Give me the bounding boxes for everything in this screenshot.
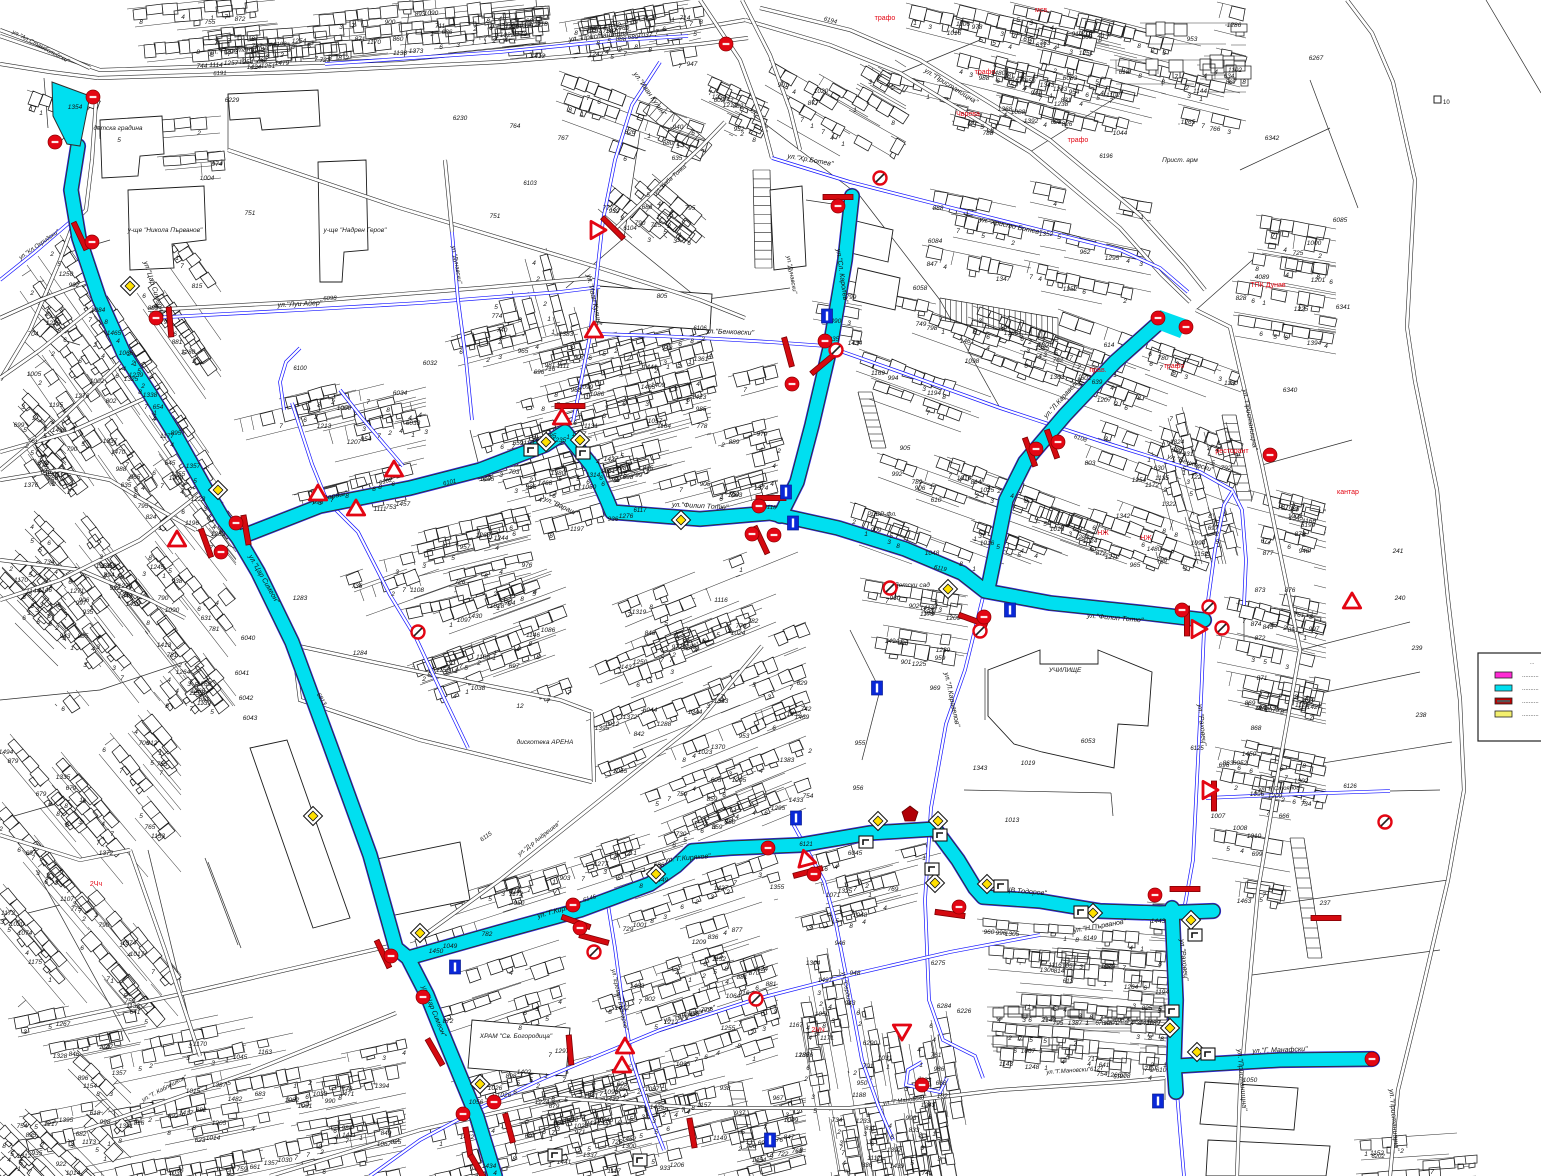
svg-text:1213: 1213	[317, 423, 332, 430]
svg-text:900: 900	[385, 19, 396, 26]
svg-text:3: 3	[990, 498, 994, 505]
svg-text:1465: 1465	[107, 330, 122, 337]
svg-text:939: 939	[609, 208, 620, 215]
svg-text:7: 7	[1169, 416, 1173, 423]
svg-text:697: 697	[1208, 525, 1219, 532]
svg-text:прав.: прав.	[1089, 367, 1106, 374]
svg-text:8: 8	[338, 1095, 342, 1102]
svg-text:3: 3	[1069, 49, 1073, 56]
svg-text:6: 6	[573, 420, 577, 427]
svg-text:1: 1	[642, 867, 646, 874]
svg-text:836: 836	[708, 934, 719, 941]
svg-text:7: 7	[627, 612, 631, 619]
svg-text:5: 5	[1029, 1037, 1033, 1044]
svg-text:685: 685	[1104, 964, 1115, 971]
svg-text:1: 1	[158, 525, 162, 532]
svg-text:1343: 1343	[973, 765, 988, 772]
svg-text:5: 5	[529, 1077, 533, 1084]
svg-text:дискотека АРЕНА: дискотека АРЕНА	[517, 738, 574, 746]
svg-text:610: 610	[931, 497, 942, 504]
svg-text:849: 849	[381, 1130, 392, 1137]
svg-text:2: 2	[1280, 797, 1285, 804]
svg-text:699: 699	[14, 422, 25, 429]
svg-text:6: 6	[500, 444, 504, 451]
svg-text:3: 3	[109, 1091, 113, 1098]
svg-text:1394: 1394	[1307, 340, 1322, 347]
svg-text:4: 4	[959, 69, 963, 76]
svg-text:7: 7	[405, 33, 409, 40]
svg-text:1094: 1094	[1191, 540, 1206, 547]
svg-text:3: 3	[904, 1086, 908, 1093]
svg-text:761: 761	[931, 1052, 942, 1059]
svg-text:3: 3	[362, 426, 366, 433]
svg-text:6044: 6044	[643, 707, 658, 714]
svg-text:6: 6	[1092, 525, 1096, 532]
svg-text:936: 936	[608, 516, 619, 523]
svg-text:1164: 1164	[657, 423, 671, 430]
svg-text:1205: 1205	[212, 1120, 227, 1127]
svg-text:1: 1	[605, 1122, 609, 1129]
svg-text:4: 4	[134, 729, 138, 736]
svg-text:6: 6	[724, 819, 728, 826]
svg-text:828: 828	[1236, 295, 1247, 302]
svg-text:2: 2	[535, 276, 540, 283]
svg-text:1357: 1357	[186, 463, 201, 470]
svg-text:5: 5	[1043, 1038, 1047, 1045]
svg-text:965: 965	[518, 348, 529, 355]
svg-text:3: 3	[1079, 964, 1083, 971]
svg-text:651: 651	[199, 696, 210, 703]
svg-text:1037: 1037	[638, 32, 653, 39]
svg-text:790: 790	[99, 922, 110, 929]
svg-text:7: 7	[1266, 810, 1270, 817]
svg-text:768: 768	[48, 475, 59, 482]
svg-text:3: 3	[518, 317, 522, 324]
svg-text:1017: 1017	[130, 951, 145, 958]
svg-text:630: 630	[1154, 465, 1165, 472]
svg-text:..........: ..........	[1522, 686, 1539, 692]
svg-text:8: 8	[1137, 43, 1141, 50]
svg-text:1225: 1225	[912, 661, 927, 668]
svg-text:1: 1	[39, 110, 43, 117]
svg-text:2: 2	[177, 662, 182, 669]
svg-text:5: 5	[227, 1080, 231, 1087]
svg-text:1: 1	[1262, 300, 1266, 307]
svg-text:725: 725	[651, 222, 662, 229]
svg-text:799: 799	[632, 472, 643, 479]
svg-text:1497: 1497	[818, 977, 833, 984]
svg-text:3: 3	[203, 506, 207, 513]
svg-text:2: 2	[344, 55, 349, 62]
svg-text:2: 2	[1206, 445, 1211, 452]
svg-text:1238: 1238	[1054, 101, 1069, 108]
svg-text:6226: 6226	[957, 1008, 972, 1015]
svg-text:3: 3	[1136, 1034, 1140, 1041]
svg-text:4: 4	[495, 545, 499, 552]
svg-text:4: 4	[997, 1017, 1001, 1024]
svg-text:7: 7	[548, 1052, 552, 1059]
svg-text:6: 6	[523, 1010, 527, 1017]
svg-text:1304: 1304	[806, 960, 821, 967]
svg-text:1074: 1074	[122, 940, 137, 947]
svg-text:3: 3	[424, 429, 428, 436]
svg-text:8: 8	[317, 402, 321, 409]
svg-text:5: 5	[1189, 491, 1193, 498]
svg-text:3: 3	[83, 662, 87, 669]
svg-text:6: 6	[890, 1134, 894, 1141]
svg-text:954: 954	[361, 436, 372, 443]
svg-text:8: 8	[219, 528, 223, 535]
svg-text:2: 2	[92, 342, 97, 349]
svg-text:3: 3	[762, 1026, 766, 1033]
svg-text:7: 7	[120, 675, 124, 682]
svg-text:1: 1	[34, 439, 38, 446]
svg-text:1: 1	[359, 1135, 363, 1142]
svg-text:1026: 1026	[488, 1085, 503, 1092]
svg-text:1070: 1070	[606, 28, 621, 35]
svg-text:3: 3	[1029, 20, 1033, 27]
svg-text:1288: 1288	[657, 721, 672, 728]
svg-text:1: 1	[552, 879, 556, 886]
svg-text:946: 946	[835, 940, 846, 947]
svg-text:1333: 1333	[714, 698, 729, 705]
svg-text:1441: 1441	[643, 364, 658, 371]
svg-text:1430: 1430	[1139, 1020, 1154, 1027]
svg-text:5: 5	[620, 453, 624, 460]
svg-text:6042: 6042	[239, 695, 254, 702]
svg-text:2: 2	[45, 873, 50, 880]
svg-text:2: 2	[818, 1001, 823, 1008]
svg-text:847: 847	[927, 261, 938, 268]
svg-text:4: 4	[792, 89, 796, 96]
svg-text:1482: 1482	[228, 1096, 243, 1103]
svg-text:трафо: трафо	[975, 69, 996, 76]
svg-text:1197: 1197	[570, 526, 584, 533]
svg-text:706: 706	[139, 740, 150, 747]
svg-text:766: 766	[1210, 126, 1221, 133]
svg-text:2: 2	[528, 477, 533, 484]
svg-text:1430: 1430	[468, 613, 483, 620]
svg-text:3: 3	[318, 1144, 322, 1151]
svg-text:6032: 6032	[423, 360, 438, 367]
svg-text:6: 6	[1292, 799, 1296, 806]
svg-text:7: 7	[227, 51, 231, 58]
svg-text:4: 4	[675, 970, 679, 977]
svg-text:4: 4	[1079, 101, 1083, 108]
svg-text:1: 1	[551, 329, 555, 336]
svg-text:7: 7	[681, 1107, 685, 1114]
svg-text:5: 5	[558, 476, 562, 483]
svg-text:799: 799	[846, 294, 857, 301]
svg-text:8: 8	[959, 561, 963, 568]
svg-text:1302: 1302	[1294, 778, 1309, 785]
svg-text:5: 5	[81, 441, 85, 448]
svg-text:7: 7	[189, 679, 193, 686]
svg-text:1196: 1196	[185, 520, 199, 527]
svg-text:6290: 6290	[863, 1040, 878, 1047]
svg-text:у-ще "Никола Първанов": у-ще "Никола Първанов"	[127, 227, 203, 234]
svg-text:1016: 1016	[980, 540, 995, 547]
svg-text:1361: 1361	[694, 356, 709, 363]
svg-text:6: 6	[1067, 72, 1071, 79]
svg-text:1: 1	[496, 605, 500, 612]
svg-text:5: 5	[48, 1024, 52, 1031]
svg-text:888: 888	[616, 36, 627, 43]
svg-text:6: 6	[824, 866, 828, 873]
svg-text:903: 903	[560, 875, 571, 882]
svg-text:4: 4	[212, 524, 216, 531]
svg-text:815: 815	[192, 283, 203, 290]
svg-text:1239: 1239	[129, 372, 144, 379]
svg-text:2: 2	[330, 399, 335, 406]
svg-text:3: 3	[918, 1132, 922, 1139]
svg-text:241: 241	[1392, 548, 1404, 555]
svg-text:7: 7	[279, 423, 283, 430]
svg-text:802: 802	[106, 398, 117, 405]
svg-text:6: 6	[181, 509, 185, 516]
svg-text:6041: 6041	[235, 670, 250, 677]
svg-text:6: 6	[1251, 298, 1255, 305]
svg-text:1254: 1254	[292, 38, 307, 45]
svg-text:7: 7	[879, 83, 883, 90]
svg-text:8: 8	[1162, 528, 1166, 535]
svg-text:5: 5	[1182, 466, 1186, 473]
svg-text:948: 948	[850, 970, 861, 977]
svg-text:1225: 1225	[1294, 306, 1309, 313]
svg-text:5: 5	[45, 464, 49, 471]
svg-text:ТПК Дунав: ТПК Дунав	[1250, 282, 1285, 289]
svg-text:4: 4	[251, 1126, 255, 1133]
svg-text:12: 12	[516, 703, 524, 710]
svg-text:2: 2	[726, 628, 731, 635]
svg-text:836: 836	[862, 1162, 873, 1169]
svg-text:7: 7	[926, 410, 930, 417]
svg-text:1: 1	[913, 20, 917, 27]
svg-text:6: 6	[623, 156, 627, 163]
svg-text:1118: 1118	[534, 21, 548, 28]
svg-text:1005: 1005	[27, 371, 42, 378]
svg-text:8: 8	[484, 573, 488, 580]
svg-text:1: 1	[671, 17, 675, 24]
svg-text:1261: 1261	[601, 468, 616, 475]
svg-text:6: 6	[133, 493, 137, 500]
svg-text:1: 1	[70, 645, 74, 652]
svg-text:8: 8	[1161, 79, 1165, 86]
svg-text:5: 5	[1273, 334, 1277, 341]
svg-text:994: 994	[888, 375, 899, 382]
svg-text:1044: 1044	[1113, 130, 1128, 137]
svg-text:6: 6	[333, 1128, 337, 1135]
svg-text:696: 696	[898, 640, 909, 647]
svg-text:741: 741	[922, 1170, 933, 1176]
svg-text:6: 6	[78, 358, 82, 365]
svg-text:1265: 1265	[1181, 119, 1196, 126]
svg-text:4: 4	[1285, 272, 1289, 279]
svg-text:УЧИЛИЩЕ: УЧИЛИЩЕ	[1048, 667, 1082, 674]
svg-text:8: 8	[574, 30, 578, 37]
svg-text:984: 984	[342, 1125, 353, 1132]
svg-text:879: 879	[8, 758, 19, 765]
svg-text:1166: 1166	[1302, 518, 1316, 525]
svg-text:7: 7	[294, 1155, 298, 1162]
svg-text:7: 7	[88, 317, 92, 324]
svg-text:1099: 1099	[579, 384, 594, 391]
svg-text:8: 8	[378, 484, 382, 491]
svg-text:749: 749	[916, 321, 927, 328]
svg-text:2: 2	[50, 351, 55, 358]
svg-text:1: 1	[1085, 1020, 1089, 1027]
svg-text:1: 1	[27, 610, 31, 617]
svg-text:1457: 1457	[396, 501, 411, 508]
svg-text:960: 960	[890, 595, 901, 602]
svg-text:4: 4	[759, 768, 763, 775]
svg-text:1107: 1107	[60, 896, 74, 903]
svg-text:1: 1	[94, 912, 98, 919]
svg-text:1177: 1177	[160, 433, 174, 440]
svg-text:935: 935	[32, 1150, 43, 1157]
svg-text:НЖ: НЖ	[1140, 535, 1152, 542]
svg-text:3: 3	[569, 345, 573, 352]
svg-text:1470: 1470	[111, 449, 126, 456]
svg-text:6: 6	[17, 847, 21, 854]
svg-text:1152: 1152	[1370, 1150, 1384, 1157]
svg-text:1173: 1173	[920, 611, 934, 618]
svg-text:6: 6	[509, 525, 513, 532]
svg-text:2: 2	[1077, 534, 1082, 541]
svg-text:7: 7	[527, 887, 531, 894]
svg-text:6: 6	[666, 1126, 670, 1133]
svg-text:826: 826	[1062, 121, 1073, 128]
svg-text:1242: 1242	[589, 51, 604, 58]
svg-text:1111: 1111	[556, 363, 569, 370]
svg-text:2: 2	[476, 660, 481, 667]
svg-text:672: 672	[1261, 538, 1272, 545]
svg-text:1172: 1172	[1, 910, 15, 917]
svg-text:1280: 1280	[181, 349, 196, 356]
svg-text:5: 5	[576, 476, 580, 483]
svg-text:1: 1	[547, 316, 551, 323]
svg-text:816: 816	[134, 1120, 145, 1127]
svg-text:4: 4	[772, 463, 776, 470]
svg-text:4: 4	[1240, 848, 1244, 855]
svg-text:4: 4	[399, 428, 403, 435]
svg-text:769: 769	[888, 886, 899, 893]
svg-text:8: 8	[345, 493, 349, 500]
svg-text:4: 4	[493, 1170, 497, 1176]
svg-text:965: 965	[1130, 562, 1141, 569]
svg-text:6: 6	[542, 1129, 546, 1136]
svg-text:7: 7	[110, 831, 114, 838]
svg-text:3: 3	[35, 607, 39, 614]
svg-text:8: 8	[650, 918, 654, 925]
svg-text:3: 3	[36, 870, 40, 877]
svg-text:1: 1	[929, 484, 933, 491]
svg-text:789: 789	[912, 479, 923, 486]
svg-text:4: 4	[692, 786, 696, 793]
svg-text:4: 4	[532, 260, 536, 267]
svg-text:1413: 1413	[920, 605, 935, 612]
svg-text:762: 762	[1053, 357, 1064, 364]
svg-text:8: 8	[1160, 1036, 1164, 1043]
svg-text:1: 1	[598, 381, 602, 388]
svg-text:871: 871	[355, 36, 366, 43]
svg-text:8: 8	[639, 883, 643, 890]
svg-text:5: 5	[1016, 17, 1020, 24]
svg-text:1: 1	[1147, 457, 1151, 464]
svg-text:8: 8	[849, 923, 853, 930]
svg-text:2: 2	[636, 1089, 641, 1096]
svg-text:6: 6	[622, 401, 626, 408]
svg-text:6: 6	[1053, 1006, 1057, 1013]
svg-text:1383: 1383	[780, 757, 795, 764]
svg-text:5: 5	[713, 969, 717, 976]
svg-text:4: 4	[7, 1157, 11, 1164]
svg-text:6: 6	[672, 842, 676, 849]
svg-text:4: 4	[152, 416, 156, 423]
svg-text:3: 3	[624, 25, 628, 32]
svg-text:916: 916	[739, 990, 750, 997]
svg-text:4: 4	[1061, 1059, 1065, 1066]
svg-text:2: 2	[1007, 1035, 1012, 1042]
svg-text:1427: 1427	[604, 456, 619, 463]
svg-text:682: 682	[196, 1107, 207, 1114]
svg-text:3: 3	[234, 49, 238, 56]
svg-text:1207: 1207	[347, 439, 362, 446]
svg-text:5: 5	[210, 709, 214, 716]
svg-text:4: 4	[509, 970, 513, 977]
svg-text:889: 889	[729, 439, 740, 446]
svg-text:1: 1	[439, 1141, 443, 1148]
svg-text:7: 7	[638, 999, 642, 1006]
svg-text:1427: 1427	[1307, 704, 1322, 711]
svg-text:1213: 1213	[723, 102, 738, 109]
svg-text:3: 3	[1218, 376, 1222, 383]
svg-text:1163: 1163	[258, 1049, 272, 1056]
svg-text:5: 5	[889, 533, 893, 540]
svg-text:3: 3	[868, 79, 872, 86]
svg-text:1049: 1049	[443, 943, 458, 950]
svg-text:1395: 1395	[59, 1117, 74, 1124]
svg-text:6: 6	[391, 481, 395, 488]
svg-text:6: 6	[1023, 36, 1027, 43]
svg-text:7: 7	[667, 796, 671, 803]
svg-text:238: 238	[1415, 712, 1427, 719]
svg-text:1: 1	[733, 807, 737, 814]
svg-text:4: 4	[969, 121, 973, 128]
svg-text:842: 842	[634, 731, 645, 738]
svg-text:7: 7	[1254, 621, 1258, 628]
svg-text:4: 4	[605, 49, 609, 56]
svg-text:898: 898	[616, 465, 627, 472]
svg-text:5: 5	[43, 433, 47, 440]
svg-text:8: 8	[1255, 266, 1259, 273]
svg-text:2: 2	[851, 519, 856, 526]
svg-text:7: 7	[1430, 1169, 1434, 1176]
svg-text:1052: 1052	[1114, 1017, 1129, 1024]
svg-text:7: 7	[1309, 715, 1313, 722]
svg-text:7: 7	[640, 710, 644, 717]
svg-text:детска градина: детска градина	[93, 124, 142, 132]
svg-text:867: 867	[1226, 79, 1237, 86]
svg-text:4: 4	[735, 814, 739, 821]
svg-text:4: 4	[888, 1123, 892, 1130]
svg-text:7: 7	[694, 1057, 698, 1064]
svg-text:3: 3	[99, 554, 103, 561]
svg-text:7: 7	[738, 1021, 742, 1028]
svg-text:1: 1	[1056, 43, 1060, 50]
svg-text:5: 5	[607, 38, 611, 45]
svg-text:2: 2	[191, 358, 196, 365]
